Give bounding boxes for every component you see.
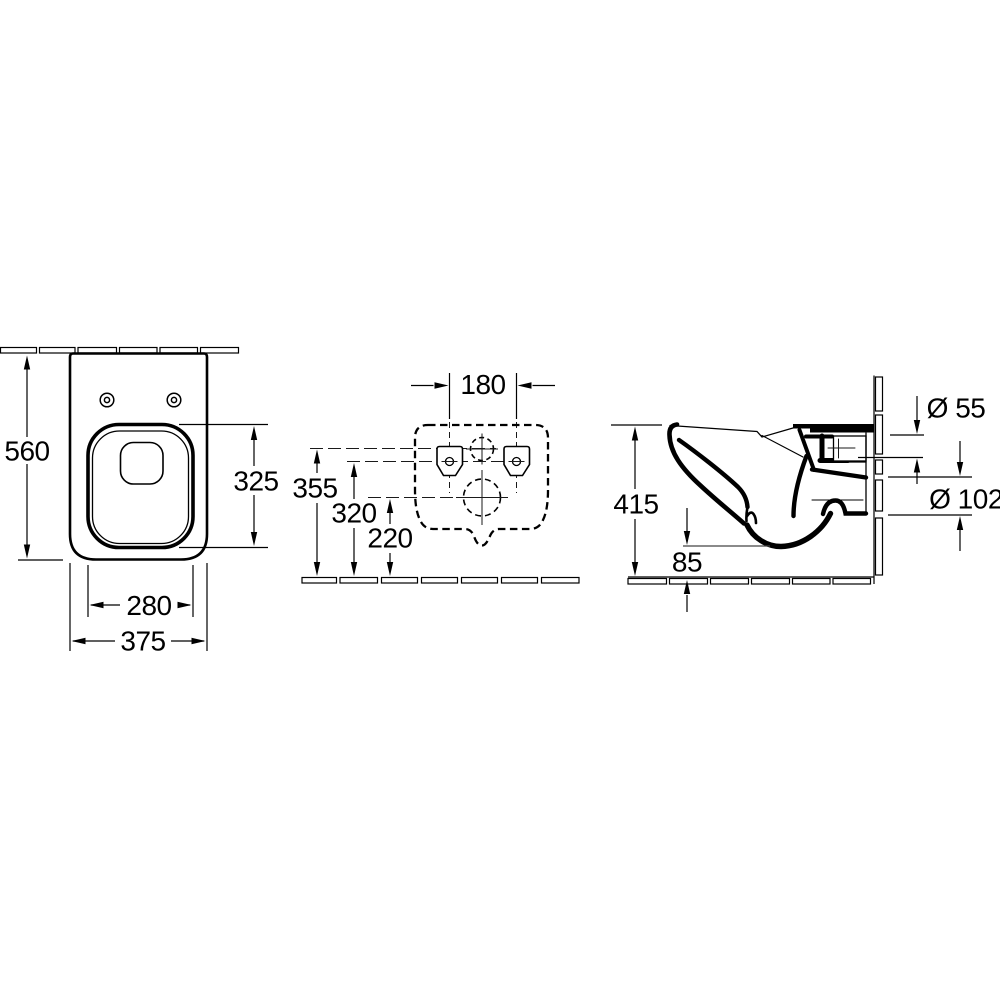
side-view: 415 85 Ø 55 Ø 102 (611, 376, 1000, 613)
dim-outlet-diameter-label: Ø 102 (929, 484, 1000, 515)
rear-view: 180 355 320 220 (292, 369, 579, 583)
top-view: 560 325 280 375 (1, 348, 279, 657)
dim-415: 415 (611, 425, 662, 576)
dim-180-label: 180 (460, 369, 505, 400)
wall-hatch-icon (1, 348, 239, 354)
fixing-plate-left (437, 447, 463, 476)
dim-inlet-diameter-label: Ø 55 (927, 393, 986, 424)
dim-85-label: 85 (672, 547, 702, 578)
floor-hatch-icon (302, 578, 579, 584)
dim-560: 560 (4, 356, 63, 561)
dim-415-label: 415 (613, 489, 658, 520)
wc-dimension-drawing: 560 325 280 375 (0, 0, 1000, 1000)
technical-drawing-canvas: 560 325 280 375 (0, 0, 1000, 1000)
dim-180: 180 (411, 369, 555, 419)
floor-hatch-side-icon (628, 577, 874, 584)
water-inlet-circle (466, 434, 498, 465)
dim-320: 320 (331, 463, 376, 576)
dim-280: 280 (88, 565, 193, 621)
dim-280-label: 280 (126, 590, 171, 621)
wc-section-profile (669, 424, 874, 547)
wall-hatch-side-icon (874, 376, 883, 585)
dim-220-label: 220 (367, 523, 412, 554)
dim-560-label: 560 (4, 436, 49, 467)
dim-375-label: 375 (120, 626, 165, 657)
waste-outlet-circle (456, 470, 508, 525)
dim-325-label: 325 (233, 466, 278, 497)
fixing-plate-right (504, 447, 530, 476)
dim-85: 85 (672, 508, 702, 612)
centerlines (310, 412, 530, 498)
